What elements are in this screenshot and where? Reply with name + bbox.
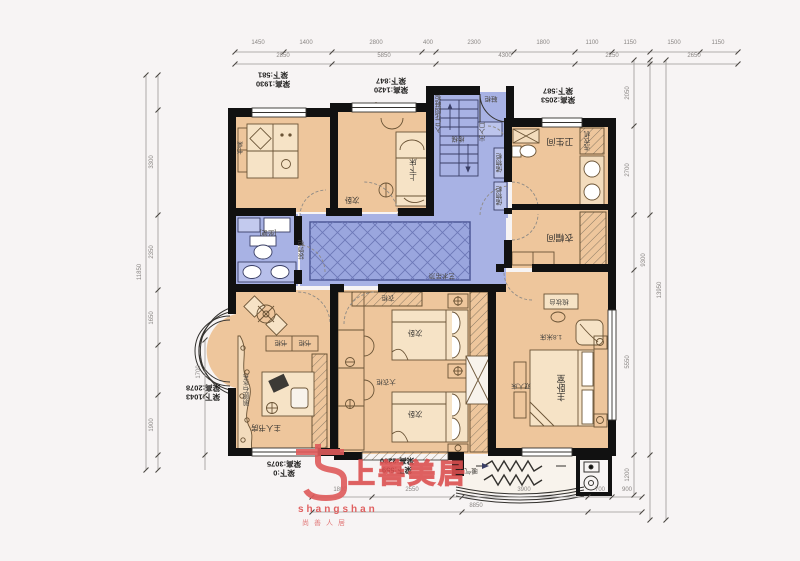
- furniture-label-wardrobe-top: 衣柜: [382, 294, 395, 304]
- dimension-value: 1150: [712, 40, 725, 46]
- floor-plan-canvas: 卫生间 衣帽间 上下床 次卧 次卧 次卧 主卧室 主人书房 鹅卵石水系 大衣柜 …: [0, 0, 800, 561]
- dimension-value: 2300: [467, 40, 480, 46]
- dimension-value: 5850: [377, 53, 390, 59]
- dimension-value: 1700: [196, 365, 202, 378]
- beam-note-1-height: 梁高:1930: [256, 79, 290, 88]
- room-label-study: 主人书房: [251, 423, 281, 434]
- furniture-label-desk: 书桌: [237, 142, 247, 155]
- room-label-bedroom2: 次卧: [345, 195, 360, 206]
- logo-latin-name: shangshan: [298, 504, 378, 515]
- furniture-label-bookcase-a: 书柜: [275, 339, 288, 349]
- dimension-value: 2800: [369, 40, 382, 46]
- furniture-label-double-bed: 双人床: [511, 382, 531, 392]
- area-label-stairs: 楼梯: [452, 135, 465, 145]
- dimension-value: 2050: [625, 86, 631, 99]
- dimension-value: 11850: [137, 264, 143, 280]
- room-label-closet: 衣帽间: [546, 232, 573, 245]
- furniture-label-cabinet1: 储物柜: [496, 153, 506, 173]
- beam-note-1-clearance: 梁下:581: [256, 71, 290, 80]
- dimension-value: 2850: [276, 53, 289, 59]
- dimension-value: 3900: [517, 487, 530, 493]
- dimension-value: 2350: [149, 245, 155, 258]
- room-label-bathroom: 卫生间: [546, 136, 573, 149]
- beam-note-3-height: 梁高:2053: [541, 95, 575, 104]
- top-left-room-furniture: [238, 124, 298, 178]
- furniture-label-bed-size: 1.8米床: [540, 333, 562, 343]
- furniture-label-wardrobe-big: 大衣柜: [376, 378, 396, 388]
- dimension-value: 1400: [299, 40, 312, 46]
- dimension-value: 1150: [624, 40, 637, 46]
- dimension-value: 1500: [667, 40, 680, 46]
- logo-tagline: 尚善人居: [302, 518, 350, 528]
- fixture-label-toilet: [坐便]: [260, 229, 277, 239]
- dimension-value: 1900: [149, 418, 155, 431]
- dimension-value: 1200: [625, 468, 631, 481]
- dimension-value: 4300: [498, 53, 511, 59]
- dimension-value: 1800: [536, 40, 549, 46]
- beam-note-4: 梁下:1043 梁高:2078: [186, 384, 220, 401]
- dimension-value: 13950: [657, 282, 663, 299]
- furniture-label-shoe-cabinet: 鞋柜: [485, 95, 498, 105]
- beam-note-4-height: 梁高:2078: [186, 384, 220, 393]
- furniture-label-cabinet2: 储物柜: [496, 186, 506, 206]
- bed-label-a: 次卧: [408, 328, 423, 339]
- furniture-label-bunk-bed: 上下床: [408, 159, 419, 182]
- beam-note-2-height: 梁高:1420: [374, 85, 408, 94]
- area-label-entry-column: 入户花园鞋柜: [435, 95, 445, 134]
- beam-note-3-clearance: 梁下:587: [541, 87, 575, 96]
- feature-label-water: 鹅卵石水系: [243, 374, 253, 407]
- furniture-label-bookcase-b: 书柜: [299, 339, 312, 349]
- dimension-value: 5550: [625, 355, 631, 368]
- beam-note-3: 梁高:2053 梁下:587: [541, 87, 575, 104]
- room-label-master: 主卧室: [555, 375, 568, 402]
- beam-note-2-clearance: 梁下:847: [374, 77, 408, 86]
- dimension-value: 1450: [251, 40, 264, 46]
- dimension-value: 2700: [625, 163, 631, 176]
- dimension-value: 3300: [149, 155, 155, 168]
- watermark-logo: 上善美居 shangshan 尚善人居: [292, 440, 482, 530]
- logo-brand-name: 上善美居: [348, 452, 468, 491]
- area-label-service-door: 出入口: [479, 122, 489, 142]
- beam-note-1: 梁高:1930 梁下:581: [256, 71, 290, 88]
- dimension-value: 9300: [641, 253, 647, 266]
- dimension-value: 900: [622, 487, 632, 493]
- bed-label-b: 次卧: [408, 409, 423, 420]
- furniture-label-display-cabinet: 装饰柜: [298, 240, 308, 260]
- furniture-label-dresser: 梳妆台: [549, 298, 569, 308]
- dimension-value: 400: [423, 40, 433, 46]
- dimension-value: 2250: [605, 53, 618, 59]
- note-label-corridor: 艺术吊顶: [429, 272, 455, 282]
- dimension-value: 2650: [687, 53, 700, 59]
- logo-glyph-icon: [292, 440, 352, 504]
- dimension-value: 1100: [586, 40, 599, 46]
- beam-note-4-clearance: 梁下:1043: [186, 392, 220, 401]
- dimension-value: 700: [595, 487, 605, 493]
- dimension-value: 1650: [149, 311, 155, 324]
- fixture-label-washer: 洗衣机: [584, 131, 594, 151]
- beam-note-2: 梁高:1420 梁下:847: [374, 77, 408, 94]
